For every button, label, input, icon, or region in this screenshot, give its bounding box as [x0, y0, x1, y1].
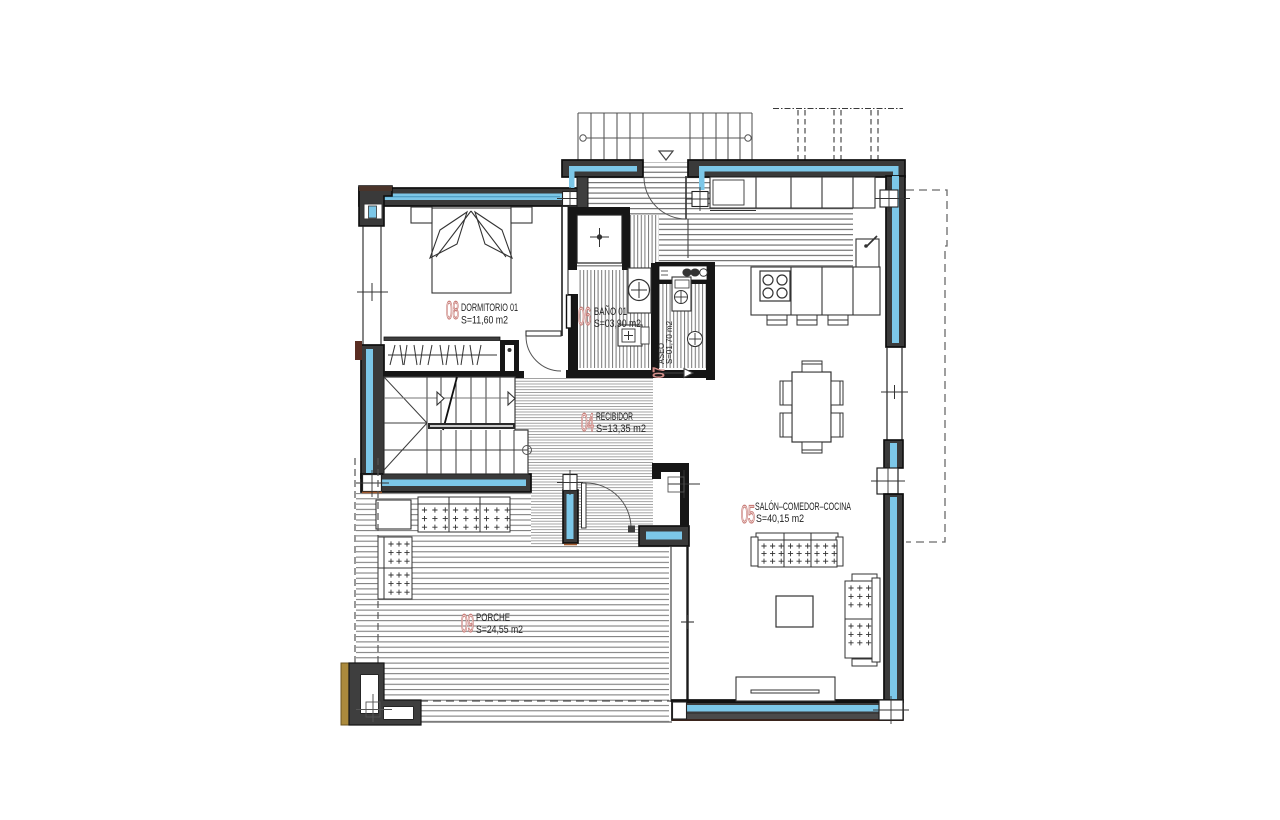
svg-text:S=11,60 m2: S=11,60 m2: [461, 315, 508, 327]
svg-text:05: 05: [741, 501, 755, 529]
svg-text:09: 09: [461, 610, 474, 638]
svg-text:07: 07: [651, 367, 668, 378]
svg-text:S=13,35 m2: S=13,35 m2: [596, 423, 646, 435]
svg-text:S=01,70 m2: S=01,70 m2: [664, 321, 674, 364]
svg-text:RECIBIDOR: RECIBIDOR: [596, 411, 633, 423]
svg-text:04: 04: [581, 409, 594, 437]
svg-text:S=03,90 m2: S=03,90 m2: [594, 318, 641, 330]
svg-text:BAÑO 01: BAÑO 01: [594, 305, 627, 318]
svg-text:08: 08: [446, 297, 459, 325]
svg-text:SALÓN–COMEDOR–COCINA: SALÓN–COMEDOR–COCINA: [755, 500, 851, 513]
svg-text:DORMITORIO 01: DORMITORIO 01: [461, 302, 518, 314]
svg-text:PORCHE: PORCHE: [476, 612, 510, 624]
svg-text:06: 06: [578, 303, 591, 331]
svg-text:S=24,55 m2: S=24,55 m2: [476, 624, 523, 636]
svg-text:S=40,15 m2: S=40,15 m2: [756, 513, 804, 525]
